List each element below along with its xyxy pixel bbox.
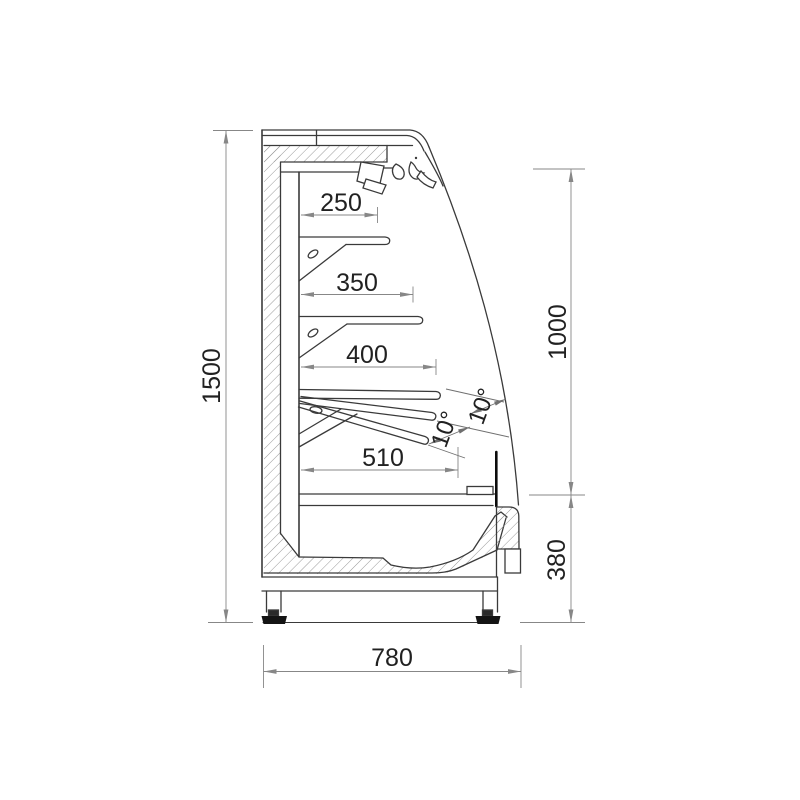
shelf-3-horizontal bbox=[299, 390, 440, 400]
arrow-left bbox=[301, 365, 314, 370]
arrow-left bbox=[264, 669, 277, 674]
dim-deck-depth-label: 510 bbox=[362, 444, 404, 472]
price-rail-block bbox=[467, 487, 493, 495]
dim-tilt-angle-a-label: 10° bbox=[426, 408, 464, 451]
cabinet-structure bbox=[262, 130, 521, 624]
dim-opening-height-label: 1000 bbox=[544, 304, 572, 360]
arrow-left bbox=[301, 468, 314, 473]
front-bumper bbox=[497, 507, 521, 577]
bumper-rail bbox=[505, 549, 521, 573]
arrow-down bbox=[224, 610, 229, 623]
arrow-down bbox=[569, 482, 574, 495]
shelf-3-fan bbox=[299, 390, 441, 448]
dim-tilt-angle-b-label: 10° bbox=[463, 385, 501, 428]
glass-front-curve bbox=[425, 147, 519, 505]
right-foot-stem bbox=[483, 610, 493, 616]
arrow-up bbox=[224, 131, 229, 144]
air-nozzle bbox=[392, 164, 404, 179]
dim-overall-depth-label: 780 bbox=[371, 644, 413, 672]
bracket-slot bbox=[307, 327, 319, 338]
left-foot-pad bbox=[262, 616, 288, 624]
lamp-cover bbox=[363, 179, 386, 194]
arrow-up bbox=[569, 495, 574, 508]
arrow-right bbox=[400, 292, 413, 297]
dim-shelf3-depth-label: 400 bbox=[346, 341, 388, 369]
dim-base-height-label: 380 bbox=[543, 539, 571, 581]
dimension-labels: 250 350 400 510 780 1500 1000 380 10° 10… bbox=[198, 189, 572, 672]
dim-shelf1-depth-label: 250 bbox=[320, 189, 362, 217]
arrow-right bbox=[365, 213, 378, 218]
technical-drawing: 250 350 400 510 780 1500 1000 380 10° 10… bbox=[0, 0, 800, 800]
arrow-right bbox=[423, 365, 436, 370]
dim-shelf2-depth-label: 350 bbox=[336, 269, 378, 297]
dim-overall-height-label: 1500 bbox=[198, 348, 226, 404]
top-flap bbox=[417, 171, 436, 188]
arrow-left bbox=[301, 213, 314, 218]
drawing-canvas: 250 350 400 510 780 1500 1000 380 10° 10… bbox=[0, 0, 800, 800]
arrow-right bbox=[508, 669, 521, 674]
arrow-left bbox=[301, 292, 314, 297]
arrow-right bbox=[445, 468, 458, 473]
bracket-slot bbox=[307, 248, 319, 259]
arrow-up bbox=[569, 169, 574, 182]
left-foot-stem bbox=[269, 610, 279, 616]
fastener-dot bbox=[415, 157, 417, 159]
base-frame bbox=[262, 577, 501, 624]
arrow-down bbox=[569, 610, 574, 623]
right-foot-pad bbox=[476, 616, 501, 624]
